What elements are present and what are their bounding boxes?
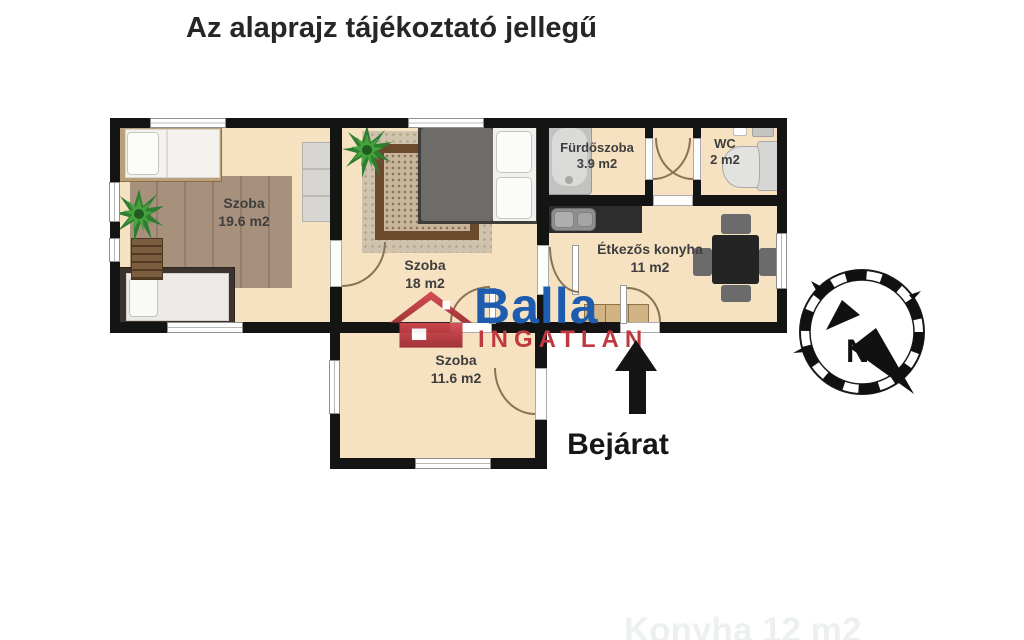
room-name: Szoba [355,256,495,274]
chair-icon [721,285,751,302]
door-opening [653,195,693,206]
shelf-icon [131,238,163,280]
window [329,360,340,414]
drain [565,176,573,184]
pillow-icon [496,177,532,219]
wall-segment [645,128,653,138]
wall-segment [777,118,787,333]
pillow-icon [129,277,158,317]
room-label-szoba-19-6: Szoba 19.6 m2 [174,194,314,230]
soap-tray-icon [733,127,747,136]
room-area: 11.6 m2 [386,369,526,387]
floor-plan-canvas: Az alaprajz tájékoztató jellegű [0,0,1024,640]
page-title: Az alaprajz tájékoztató jellegű [186,12,597,45]
room-area: 3.9 m2 [545,156,649,172]
bed-icon [119,125,222,182]
pillow-icon [127,132,159,175]
room-label-wc: WC 2 m2 [697,136,753,168]
wall-segment [110,118,120,333]
brand-house-icon [388,286,474,350]
window [167,322,243,333]
brand-name: Balla [474,281,599,331]
window [109,182,120,222]
room-name: Szoba [174,194,314,212]
wall-segment [549,195,653,206]
window [776,233,787,289]
wall-segment [693,180,701,195]
room-label-szoba-11-6: Szoba 11.6 m2 [386,351,526,387]
wall-segment [660,322,787,333]
room-area: 2 m2 [697,152,753,168]
chair-icon [721,214,751,234]
door-opening [535,368,547,420]
compass-north-label: N [846,333,869,369]
room-area: 19.6 m2 [174,212,314,230]
faint-caption: Konyha 12 m2 [624,611,861,640]
duvet [421,128,493,221]
entrance-label: Bejárat [540,428,696,462]
window [109,238,120,262]
door-opening [330,240,342,287]
plant-icon [112,186,166,244]
toilet-tank [757,141,779,191]
room-name: WC [697,136,753,152]
compass-icon: N [792,262,932,402]
wall-segment [693,195,777,206]
room-area: 11 m2 [577,258,723,276]
window [415,458,491,469]
room-name: Fürdőszoba [545,140,649,156]
wall-segment [330,128,342,240]
pillow-icon [496,131,532,173]
bed-icon [418,125,539,224]
sink-basin [554,211,574,228]
window [408,118,484,128]
plant-icon [340,122,394,180]
entrance-arrow-icon [615,340,657,371]
room-label-furdoszoba: Fürdőszoba 3.9 m2 [545,140,649,172]
door-leaf [620,285,627,324]
sink-icon [551,208,596,231]
room-name: Étkezős konyha [577,240,723,258]
window [150,118,226,128]
room-label-etkezos-konyha: Étkezős konyha 11 m2 [577,240,723,276]
sink-drainboard [577,212,593,227]
wall-segment [330,287,342,322]
wall-segment [645,180,653,195]
entrance-arrow-shaft [629,370,646,414]
